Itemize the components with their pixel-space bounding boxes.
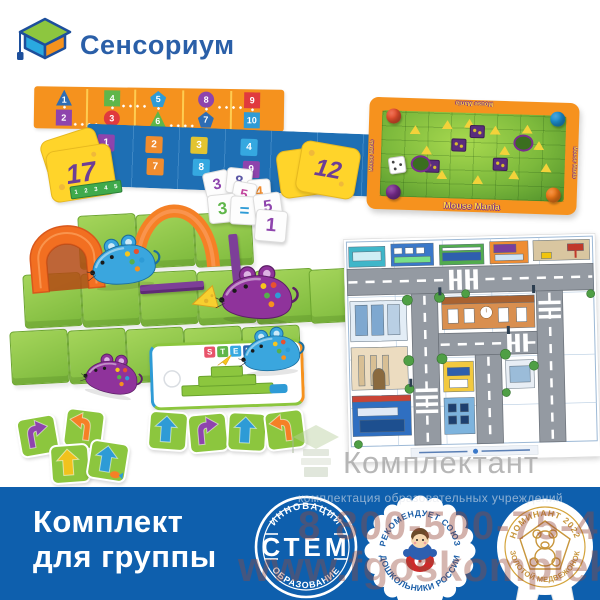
coding-card: [147, 410, 190, 453]
dotted-connector: [205, 106, 208, 114]
dotted-connector: [120, 104, 146, 107]
mouse-mania-board: Mouse Mania Mouse Mania Mouse Mania Mous…: [366, 97, 579, 216]
doodle-icon: [161, 368, 184, 391]
robot-mouse-purple-maze: [212, 260, 302, 328]
robot-mouse-blue-floor: [234, 324, 307, 379]
maze-tile: [9, 329, 70, 386]
watermark-logo-icon: [291, 423, 341, 481]
city-map-art: [343, 233, 600, 463]
board-grid-line: [230, 91, 232, 129]
dotted-connector: [111, 104, 114, 112]
mouse-trap-piece: [470, 125, 485, 138]
ruler-number: 4: [104, 185, 108, 191]
blue-board-cell: 7: [146, 158, 164, 176]
ruler-number: 1: [74, 189, 78, 195]
car-sticker: [269, 384, 287, 394]
mouse-mania-title-left: Mouse Mania: [368, 140, 375, 172]
coding-card: [226, 411, 268, 453]
graduation-cap-icon: [16, 14, 74, 70]
stem-letter-tile: S: [204, 346, 215, 357]
banner-title-line2: для группы: [33, 539, 217, 575]
orange-board-cell: 10: [244, 112, 260, 128]
dotted-connector: [216, 106, 242, 109]
die: 1: [254, 209, 289, 244]
mouse-trap-piece: [493, 158, 508, 171]
coding-card: [186, 411, 229, 454]
mouse-mania-title-right: Mouse Mania: [571, 146, 578, 178]
robot-mouse-blue-maze: [81, 230, 164, 294]
arrow-straight-up-icon: [51, 445, 85, 479]
mouse-mania-field: [380, 110, 567, 202]
watermark-tagline-text: комплектация образовательных учреждений: [298, 491, 563, 505]
orange-number-board: 14589236710: [34, 86, 285, 131]
board-grid-line: [134, 90, 136, 128]
dotted-connector: [251, 106, 254, 114]
mouse-trap-piece: [451, 138, 466, 151]
game-ball: [386, 184, 401, 199]
arrow-straight-up-icon: [228, 413, 262, 447]
mouse-mania-grid: [380, 110, 567, 202]
banner-title-line1: Комплект: [33, 504, 183, 540]
ruler-number: 5: [114, 184, 118, 190]
coding-card: [85, 438, 131, 484]
ruler-number: 3: [94, 186, 98, 192]
blue-board-cell: 3: [190, 137, 208, 155]
arrow-turn-right-icon: [17, 416, 54, 453]
dotted-connector: [157, 105, 160, 113]
dotted-connector: [63, 104, 66, 112]
orange-board-cell: 6: [150, 111, 166, 127]
arrow-turn-right-icon: [188, 414, 223, 449]
blue-board-cell: 4: [240, 139, 258, 157]
mouse-mania-title: Mouse Mania: [443, 200, 500, 212]
game-die: [388, 155, 407, 174]
blue-board-cell: 2: [145, 136, 163, 154]
board-grid-line: [182, 90, 184, 128]
orange-board-cell: 7: [198, 112, 214, 128]
ruler-number: 2: [84, 188, 88, 194]
arrow-straight-up-icon: [149, 412, 183, 446]
mouse-mania-title-top: Mouse Mania: [456, 99, 494, 106]
fish-sticker-icon: [108, 469, 123, 480]
board-grid-line: [86, 89, 88, 127]
watermark-site: www.fgoskomplekt.ru: [238, 543, 600, 591]
brand-logo-text: Сенсориум: [80, 30, 235, 61]
cheese-card-12: 12: [294, 139, 362, 201]
watermark-brand-text: Комплектант: [343, 445, 539, 481]
city-road-map: [343, 233, 600, 463]
paper-plane-icon: [216, 354, 232, 367]
coding-card: [49, 443, 92, 486]
product-card: Сенсориум 14589236710 12346789 17 2 12 1…: [0, 0, 600, 600]
orange-board-cell: 2: [56, 110, 72, 126]
